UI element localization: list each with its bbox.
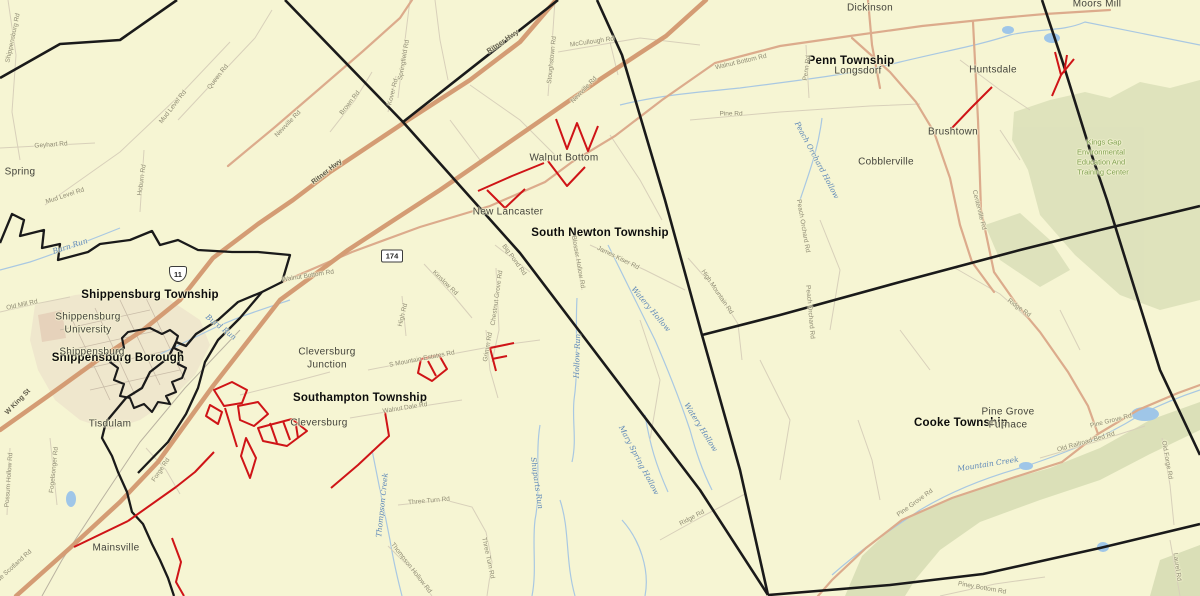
red-segment — [225, 408, 237, 447]
red-segment — [492, 356, 507, 359]
red-segment — [241, 438, 256, 478]
red-segment — [270, 423, 277, 443]
stream — [622, 520, 646, 596]
stream — [800, 118, 822, 200]
red-segment — [238, 402, 268, 426]
ponds — [66, 26, 1159, 552]
stream — [645, 415, 668, 492]
red-segment — [172, 538, 184, 596]
red-segment — [1052, 52, 1061, 96]
boundary — [0, 0, 177, 78]
stream — [372, 450, 402, 596]
red-segment — [428, 361, 436, 376]
stream — [620, 22, 1200, 105]
urban-area — [30, 290, 210, 430]
boundary — [403, 0, 558, 122]
stream — [532, 425, 540, 596]
stream — [560, 500, 575, 596]
boundary — [285, 0, 768, 595]
boundary — [768, 524, 1200, 595]
red-segment — [951, 87, 992, 129]
red-segment — [283, 421, 290, 440]
stream — [608, 245, 712, 490]
red-segment — [556, 119, 598, 151]
red-segment — [176, 452, 214, 487]
boundary — [597, 0, 768, 595]
forest-areas — [845, 80, 1200, 596]
red-segment — [206, 405, 222, 424]
red-segment — [331, 412, 389, 488]
red-segment — [128, 487, 176, 521]
map-vector-layer — [0, 0, 1200, 596]
map-canvas[interactable]: Shippensburg TownshipShippensburg Boroug… — [0, 0, 1200, 596]
red-segment — [296, 425, 298, 438]
forest-mountain-creek — [845, 402, 1200, 596]
red-segment — [258, 419, 307, 446]
